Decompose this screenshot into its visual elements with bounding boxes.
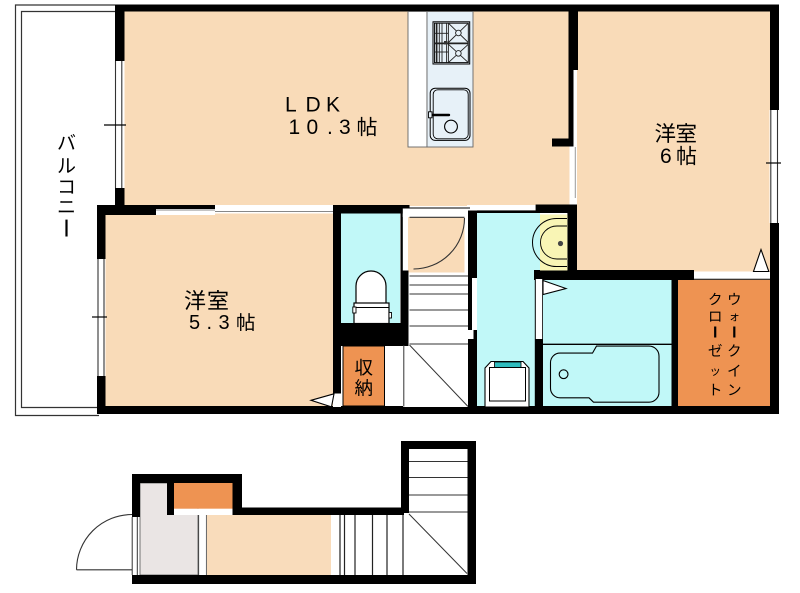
svg-text:.: . — [327, 116, 333, 139]
svg-text:3: 3 — [219, 312, 230, 334]
svg-text:K: K — [326, 94, 340, 117]
svg-text:D: D — [306, 94, 321, 117]
svg-text:0: 0 — [307, 116, 319, 139]
svg-text:1: 1 — [289, 116, 301, 139]
svg-text:L: L — [285, 94, 297, 117]
svg-text:5: 5 — [189, 312, 200, 334]
svg-text:.: . — [207, 312, 213, 334]
svg-text:6: 6 — [660, 145, 672, 168]
svg-text:3: 3 — [339, 116, 351, 139]
